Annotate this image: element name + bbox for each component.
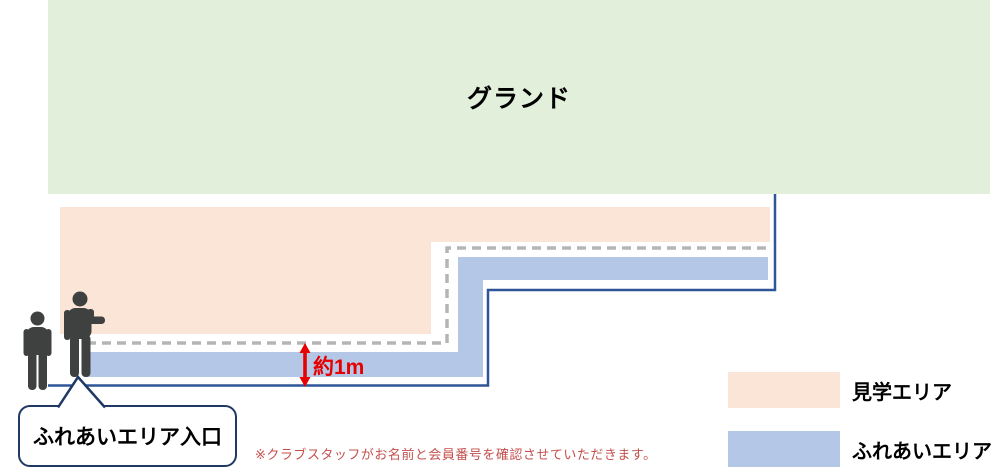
callout-tail — [50, 373, 114, 411]
staff-note: ※クラブスタッフがお名前と会員番号を確認させていただきます。 — [255, 444, 657, 463]
entrance-callout-label: ふれあいエリア入口 — [33, 421, 222, 451]
person-icon — [24, 312, 52, 391]
legend-item-viewing-area: 見学エリア — [728, 372, 952, 408]
interaction-area-swatch — [728, 431, 840, 467]
entrance-callout: ふれあいエリア入口 — [18, 405, 237, 467]
distance-label: 約1m — [313, 351, 364, 381]
viewing-area-label: 見学エリア — [852, 376, 952, 405]
legend-item-interaction-area: ふれあいエリア — [728, 431, 992, 467]
interaction-area-label: ふれあいエリア — [852, 435, 992, 464]
viewing-area-swatch — [728, 372, 840, 408]
area-map-diagram: グランド — [0, 0, 1000, 473]
